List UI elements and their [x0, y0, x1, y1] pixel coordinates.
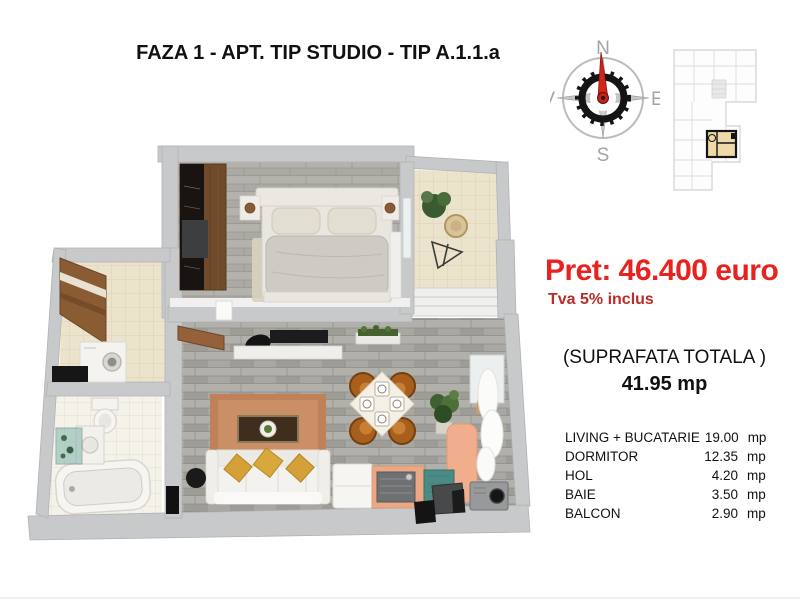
oven — [432, 483, 465, 514]
coffee-table — [238, 416, 298, 442]
wall-right-step — [496, 240, 516, 318]
room-name: HOL — [565, 466, 698, 485]
bathtub — [54, 459, 151, 515]
table-row: HOL 4.20 mp — [565, 466, 769, 485]
bed — [256, 188, 398, 302]
table-row: LIVING + BUCATARIE 19.00 mp — [565, 428, 769, 447]
room-unit: mp — [747, 485, 769, 504]
total-surface: (SUPRAFATA TOTALA ) 41.95 mp — [552, 347, 777, 396]
building-locator — [660, 36, 764, 196]
room-area: 3.50 — [698, 485, 738, 504]
media-console — [234, 346, 342, 359]
room-name: DORMITOR — [565, 447, 698, 466]
table-row: BAIE 3.50 mp — [565, 485, 769, 504]
room-area: 12.35 — [698, 447, 738, 466]
fridge — [333, 464, 373, 508]
table-row: BALCON 2.90 mp — [565, 504, 769, 523]
stairwell-hatch — [712, 80, 726, 98]
nightstand-left — [240, 196, 260, 220]
tv — [270, 330, 328, 343]
page-bottom-edge — [0, 597, 800, 599]
highlighted-unit — [707, 131, 736, 157]
wall-hall-bath — [46, 382, 170, 396]
wall-bedroom-top — [158, 146, 414, 162]
microwave — [470, 482, 508, 510]
dining-set — [350, 372, 415, 444]
wardrobe — [180, 164, 226, 290]
surface-value: 41.95 mp — [552, 373, 777, 396]
shower — [56, 428, 82, 464]
room-area: 19.00 — [700, 428, 739, 447]
room-name: BALCON — [565, 504, 698, 523]
room-area: 2.90 — [698, 504, 738, 523]
compass-icon: N S E V — [550, 38, 660, 168]
room-name: LIVING + BUCATARIE — [565, 428, 700, 447]
sofa — [206, 448, 330, 504]
room-area-table: LIVING + BUCATARIE 19.00 mp DORMITOR 12.… — [565, 428, 769, 523]
room-unit: mp — [747, 447, 769, 466]
price-text: Pret: 46.400 euro — [545, 254, 800, 288]
bedroom-door — [216, 301, 232, 320]
room-unit: mp — [747, 504, 769, 523]
compass-north-label: N — [596, 38, 610, 59]
balcony-window — [411, 288, 507, 316]
wall-hall-top — [52, 248, 170, 262]
surface-label: (SUPRAFATA TOTALA ) — [552, 347, 777, 369]
vat-note: Tva 5% inclus — [548, 291, 654, 309]
faucet-icon — [406, 474, 412, 480]
room-unit: mp — [748, 428, 769, 447]
floor-speaker — [186, 468, 206, 488]
room-unit: mp — [747, 466, 769, 485]
sink-counter — [372, 466, 424, 508]
nightstand-right — [382, 196, 399, 220]
bedroom-window — [403, 198, 411, 258]
terrace-door — [414, 500, 436, 524]
wall-bedroom-living — [168, 306, 412, 322]
room-area: 4.20 — [698, 466, 738, 485]
table-row: DORMITOR 12.35 mp — [565, 447, 769, 466]
compass-west-label: V — [550, 89, 555, 110]
bedroom-shelf — [390, 232, 401, 298]
hall-shelf — [52, 366, 88, 382]
entrance-door — [166, 486, 179, 514]
compass-east-label: E — [651, 89, 660, 110]
room-name: BAIE — [565, 485, 698, 504]
compass-south-label: S — [597, 145, 610, 166]
wicker-chair — [445, 215, 467, 237]
